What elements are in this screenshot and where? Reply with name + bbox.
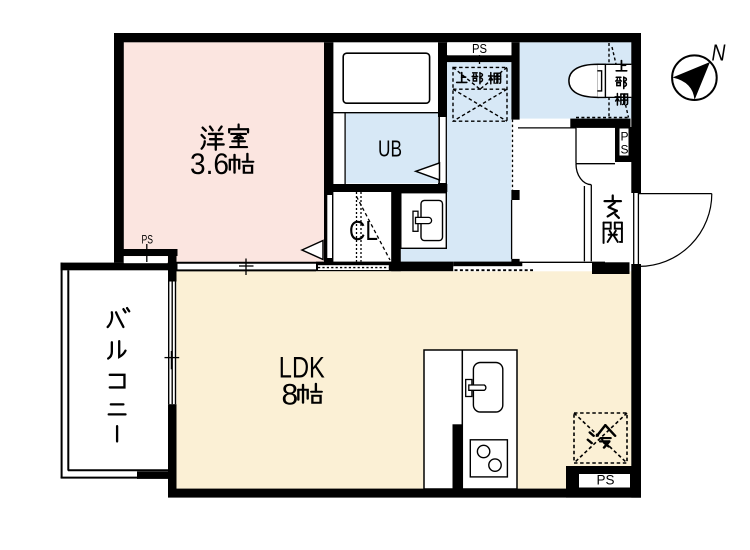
svg-text:PS: PS — [472, 41, 487, 56]
svg-text:PS: PS — [597, 473, 615, 488]
svg-text:PS: PS — [141, 233, 153, 247]
svg-text:UB: UB — [378, 135, 402, 161]
svg-text:3.6: 3.6 — [190, 148, 229, 181]
svg-text:S: S — [620, 143, 628, 157]
svg-text:8: 8 — [282, 379, 299, 412]
svg-text:CL: CL — [349, 215, 378, 246]
svg-text:P: P — [620, 130, 628, 144]
svg-text:N: N — [712, 40, 726, 66]
